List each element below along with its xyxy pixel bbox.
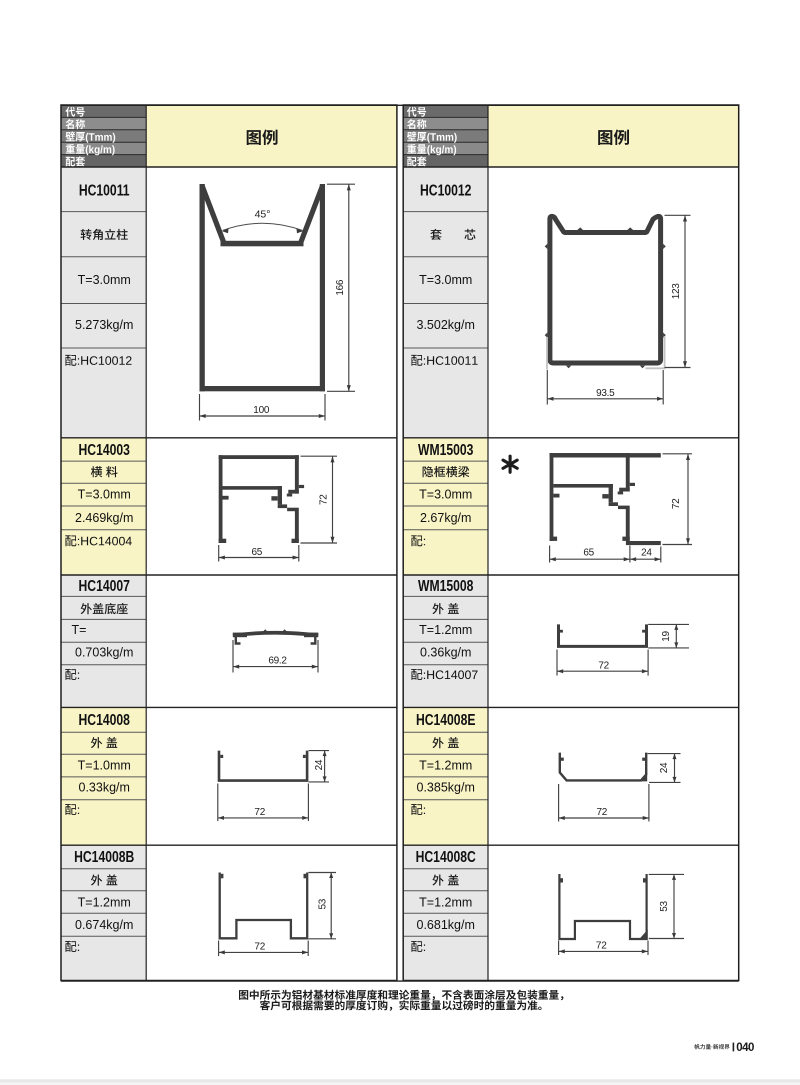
svg-text:HC14008B: HC14008B bbox=[74, 848, 134, 866]
svg-text:24: 24 bbox=[641, 547, 652, 558]
svg-text:2.469kg/m: 2.469kg/m bbox=[75, 511, 133, 525]
svg-text:T=1.2mm: T=1.2mm bbox=[419, 896, 472, 910]
svg-text:65: 65 bbox=[583, 547, 594, 558]
svg-text:65: 65 bbox=[252, 547, 263, 558]
svg-text:0.36kg/m: 0.36kg/m bbox=[420, 646, 471, 660]
svg-text:166: 166 bbox=[335, 279, 346, 296]
svg-text:T=3.0mm: T=3.0mm bbox=[78, 273, 131, 287]
svg-text:5.273kg/m: 5.273kg/m bbox=[75, 318, 133, 332]
svg-text:45°: 45° bbox=[255, 209, 271, 221]
svg-text:24: 24 bbox=[314, 759, 325, 770]
svg-text:040: 040 bbox=[736, 1042, 754, 1054]
svg-text:100: 100 bbox=[253, 405, 270, 416]
svg-text:0.674kg/m: 0.674kg/m bbox=[75, 918, 133, 932]
svg-text:T=3.0mm: T=3.0mm bbox=[78, 488, 131, 502]
svg-text:19: 19 bbox=[661, 631, 672, 642]
svg-text:72: 72 bbox=[254, 807, 265, 818]
svg-text:72: 72 bbox=[598, 661, 609, 672]
svg-text:72: 72 bbox=[596, 940, 607, 951]
svg-text:72: 72 bbox=[597, 807, 608, 818]
svg-text:72: 72 bbox=[318, 494, 329, 505]
svg-text:HC14008: HC14008 bbox=[79, 712, 130, 730]
svg-text:HC14008E: HC14008E bbox=[416, 712, 475, 730]
svg-text:72: 72 bbox=[254, 942, 265, 953]
svg-text:T=: T= bbox=[72, 623, 87, 637]
svg-text:123: 123 bbox=[671, 283, 682, 300]
svg-text:WM15008: WM15008 bbox=[418, 577, 473, 595]
svg-text:0.33kg/m: 0.33kg/m bbox=[78, 780, 129, 794]
svg-text:HC14008C: HC14008C bbox=[416, 848, 476, 866]
svg-text:T=1.2mm: T=1.2mm bbox=[78, 896, 131, 910]
svg-text:T=1.2mm: T=1.2mm bbox=[419, 759, 472, 773]
svg-text:53: 53 bbox=[317, 898, 328, 909]
svg-text:2.67kg/m: 2.67kg/m bbox=[420, 511, 471, 525]
svg-text:HC14003: HC14003 bbox=[79, 441, 130, 459]
svg-text:HC10012: HC10012 bbox=[420, 182, 471, 200]
svg-text:93.5: 93.5 bbox=[596, 388, 615, 399]
svg-text:T=1.2mm: T=1.2mm bbox=[419, 623, 472, 637]
svg-text:HC14007: HC14007 bbox=[79, 577, 130, 595]
svg-text:WM15003: WM15003 bbox=[418, 441, 473, 459]
svg-text:0.385kg/m: 0.385kg/m bbox=[417, 780, 475, 794]
svg-text:HC10011: HC10011 bbox=[79, 182, 130, 200]
svg-text:T=3.0mm: T=3.0mm bbox=[419, 488, 472, 502]
svg-text:0.703kg/m: 0.703kg/m bbox=[75, 646, 133, 660]
svg-text:69.2: 69.2 bbox=[268, 656, 287, 667]
svg-text:0.681kg/m: 0.681kg/m bbox=[417, 918, 475, 932]
svg-text:T=3.0mm: T=3.0mm bbox=[419, 273, 472, 287]
svg-text:3.502kg/m: 3.502kg/m bbox=[417, 318, 475, 332]
svg-text:24: 24 bbox=[659, 762, 670, 773]
svg-text:T=1.0mm: T=1.0mm bbox=[78, 759, 131, 773]
svg-text:53: 53 bbox=[659, 901, 670, 912]
svg-text:72: 72 bbox=[671, 498, 682, 509]
